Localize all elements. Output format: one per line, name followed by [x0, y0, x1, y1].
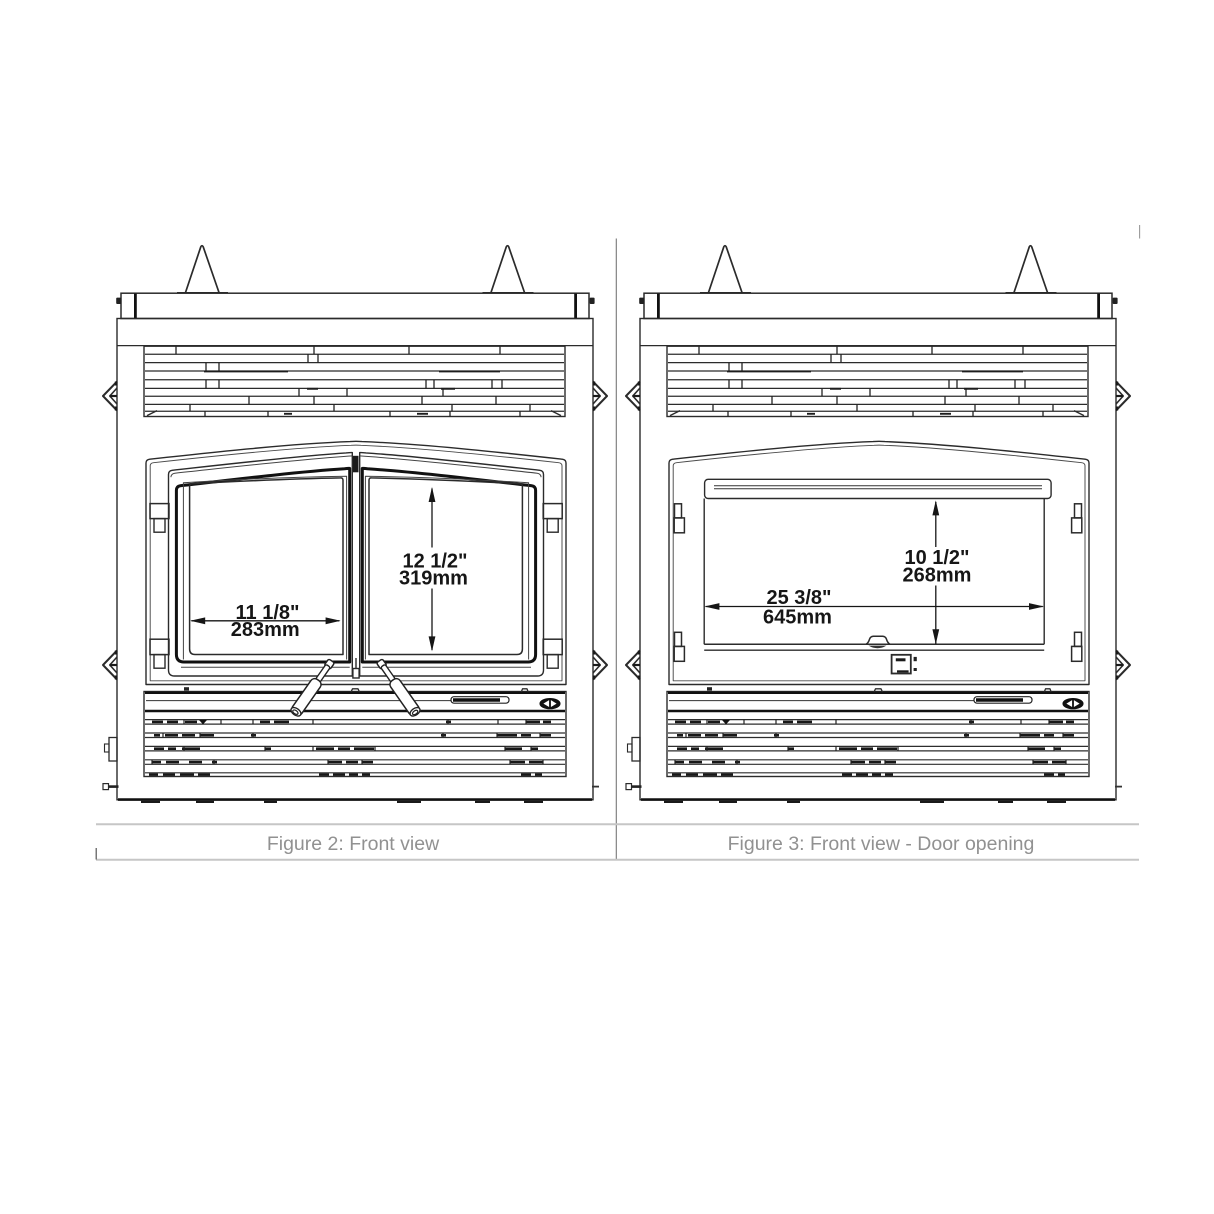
svg-text:645mm: 645mm: [763, 607, 832, 629]
svg-text:25 3/8": 25 3/8": [766, 587, 831, 609]
svg-text:Figure 2: Front view: Figure 2: Front view: [267, 833, 440, 855]
svg-text:268mm: 268mm: [903, 564, 972, 586]
svg-text:Figure 3: Front view - Door op: Figure 3: Front view - Door opening: [728, 833, 1035, 855]
svg-text:319mm: 319mm: [399, 568, 468, 590]
svg-text:283mm: 283mm: [231, 619, 300, 641]
